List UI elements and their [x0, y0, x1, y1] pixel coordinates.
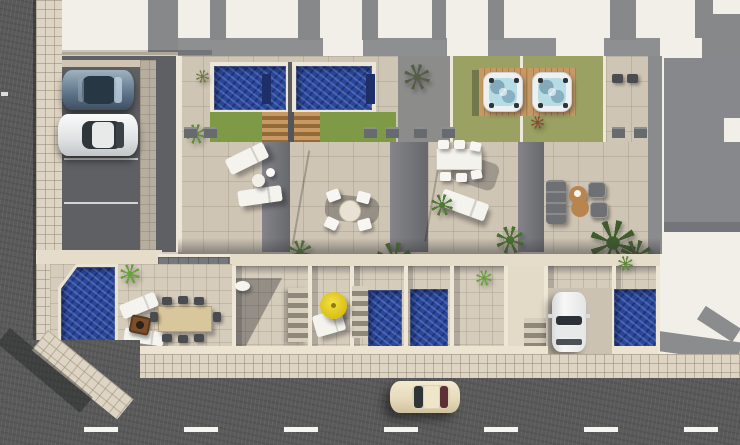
round-dining-table	[339, 200, 361, 222]
dining-chair	[454, 140, 465, 149]
dining-chair	[213, 312, 221, 322]
palm-shadow	[404, 64, 430, 90]
car-roof	[556, 326, 582, 338]
yard-top-shadow	[232, 266, 658, 275]
car-windshield	[116, 122, 124, 148]
potted-plant	[431, 194, 453, 216]
terrace-left-wall	[176, 56, 182, 252]
dining-chair	[162, 334, 172, 342]
rect-dining-table	[436, 148, 482, 170]
white-car-parked	[58, 114, 138, 156]
terrace-divider	[390, 142, 428, 252]
roof-channel	[610, 0, 636, 40]
roof-channel	[298, 0, 320, 40]
corner-ground-pool	[61, 267, 115, 351]
parasol-pole-tip	[331, 303, 336, 308]
hot-tub-corner-jets	[489, 78, 494, 83]
bright-plant	[120, 264, 140, 284]
ac-unit	[414, 127, 427, 138]
white-car-driveway	[552, 292, 586, 352]
yard-wall	[656, 266, 660, 354]
dining-chair	[456, 173, 467, 182]
dining-chair	[150, 312, 158, 322]
dining-chair	[178, 296, 188, 304]
neighbor-wall-main	[664, 58, 740, 228]
armchair	[590, 202, 608, 218]
roof-channel	[210, 0, 226, 40]
patio-chair	[612, 74, 623, 83]
garden-ball	[266, 168, 275, 177]
wood-steps-unit2	[294, 112, 320, 142]
parking-walkway-strip	[140, 60, 156, 252]
ac-unit	[442, 127, 455, 138]
car-mirror	[585, 314, 590, 318]
wall-shadow	[454, 266, 460, 354]
long-dining-table	[158, 306, 212, 332]
side-table	[252, 174, 265, 187]
roof-channel	[695, 0, 713, 38]
curve-lounger	[571, 199, 589, 217]
armchair	[588, 182, 606, 198]
terrace-right-band	[648, 56, 662, 254]
flower-plant	[531, 116, 544, 129]
ac-unit	[204, 127, 217, 138]
car-cabin	[82, 76, 116, 104]
pool-shade-unit1	[262, 74, 271, 104]
dining-chair	[194, 334, 204, 342]
aerial-render-scene	[0, 0, 740, 445]
pool-shade-unit2	[366, 74, 375, 104]
car-rear-glass	[440, 386, 448, 408]
hot-tub-unit3	[483, 72, 523, 112]
ac-unit	[364, 127, 377, 138]
roof-parapet-gap	[447, 38, 488, 58]
sidewalk-bottom	[46, 354, 740, 378]
dining-chair	[194, 297, 204, 305]
outdoor-sofa	[546, 180, 566, 224]
front-wall	[612, 346, 658, 354]
bright-plant	[476, 270, 492, 286]
wall-shadow	[312, 266, 318, 354]
dining-chair	[440, 172, 451, 181]
dining-chair	[162, 297, 172, 305]
dining-chair	[470, 169, 482, 180]
neighbor-wall-edge	[664, 222, 740, 232]
roof-channel	[432, 0, 446, 40]
roof-parapet-gap	[323, 38, 363, 58]
ground-pool	[410, 289, 448, 352]
roof-shadow-line	[62, 50, 212, 55]
cream-car-street	[390, 381, 460, 413]
steel-blue-car	[62, 70, 134, 110]
bright-plant	[618, 256, 633, 271]
roof-channel	[362, 0, 378, 40]
roof-row-white	[178, 0, 660, 40]
roof-pool-unit1	[214, 66, 286, 110]
car-roof	[424, 386, 439, 408]
car-rear-glass	[556, 339, 582, 345]
round-table	[235, 281, 250, 291]
yard-wall	[504, 266, 508, 354]
lawn-unit1	[210, 112, 262, 142]
roof-pool-unit2	[296, 66, 372, 110]
road-center-dashes	[84, 427, 740, 432]
hot-tub-unit4	[532, 72, 572, 112]
yard-top-wall	[36, 250, 162, 264]
hot-tub-corner-jets	[538, 78, 543, 83]
main-street-bottom	[36, 378, 740, 445]
lounger-pillow	[574, 190, 581, 197]
wood-steps-unit1	[262, 112, 288, 142]
fire-pit	[128, 314, 151, 336]
ac-unit	[184, 127, 197, 138]
road-dash	[1, 92, 8, 96]
neighbor-roof-notch	[724, 118, 740, 142]
car-rear-glass	[78, 78, 84, 102]
staircase	[288, 288, 308, 342]
shrub	[196, 70, 209, 83]
roof-parapet-gap	[556, 38, 604, 58]
car-windshield	[414, 386, 423, 408]
car-windshield	[556, 316, 582, 325]
patio-chair	[627, 74, 638, 83]
ac-unit	[634, 127, 647, 138]
yard-top-wall	[228, 254, 660, 266]
car-windshield	[114, 77, 122, 103]
dining-chair	[438, 140, 449, 149]
dining-chair	[178, 335, 188, 343]
staircase	[352, 286, 368, 338]
terrace-edge-shadow	[178, 238, 660, 254]
yellow-parasol	[320, 292, 347, 319]
car-roof	[92, 122, 114, 148]
roof-channel	[488, 0, 504, 40]
car-mirror	[548, 314, 553, 318]
ground-pool	[368, 290, 402, 352]
ac-unit	[386, 127, 399, 138]
wall-shadow	[236, 266, 242, 354]
ac-unit	[612, 127, 625, 138]
lawn-unit2	[320, 112, 396, 142]
fire-pit-bowl	[135, 320, 144, 329]
parking-stall-line	[64, 202, 138, 204]
parking-stall-line	[64, 158, 138, 160]
